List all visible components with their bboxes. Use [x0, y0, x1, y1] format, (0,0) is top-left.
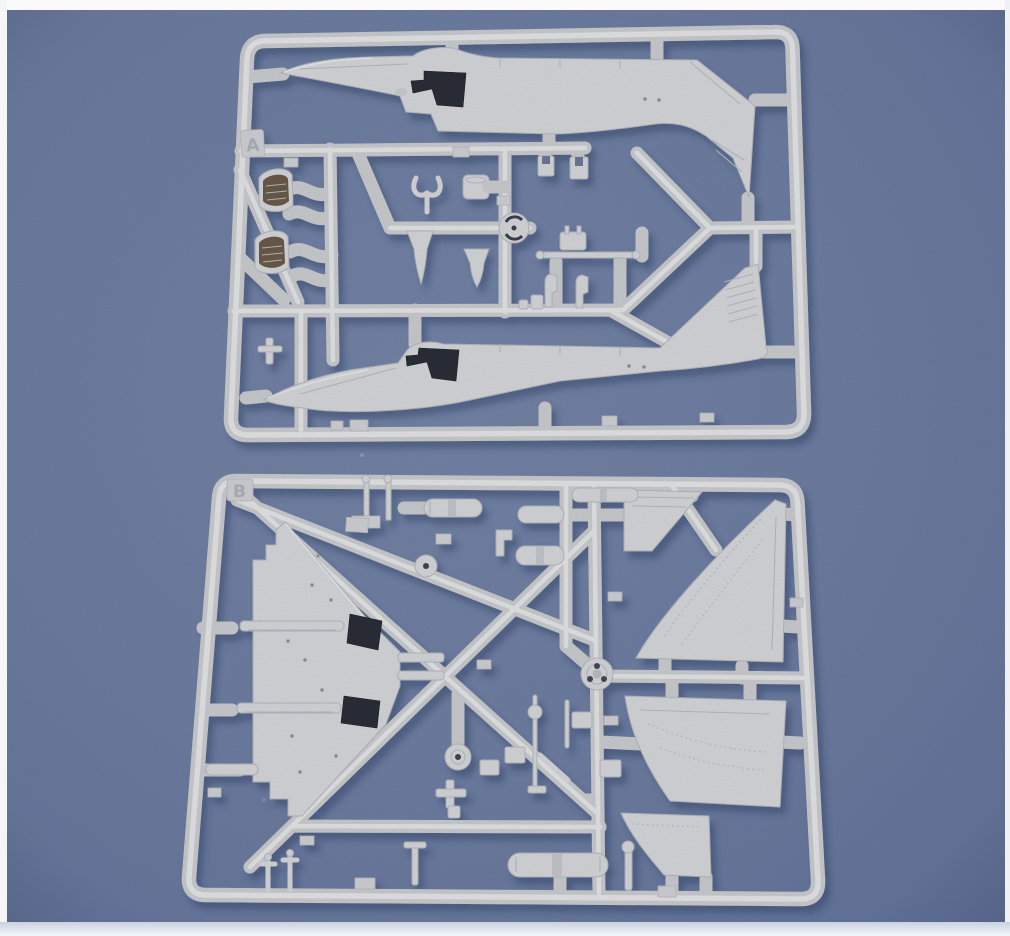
border-bottom	[0, 922, 1010, 936]
border-right	[1005, 0, 1010, 936]
sprue-photo-canvas: A	[0, 0, 1010, 936]
border-left	[0, 0, 7, 936]
border-top	[0, 0, 1010, 10]
vignette	[0, 0, 1010, 936]
sprue-photo: A	[0, 0, 1010, 936]
